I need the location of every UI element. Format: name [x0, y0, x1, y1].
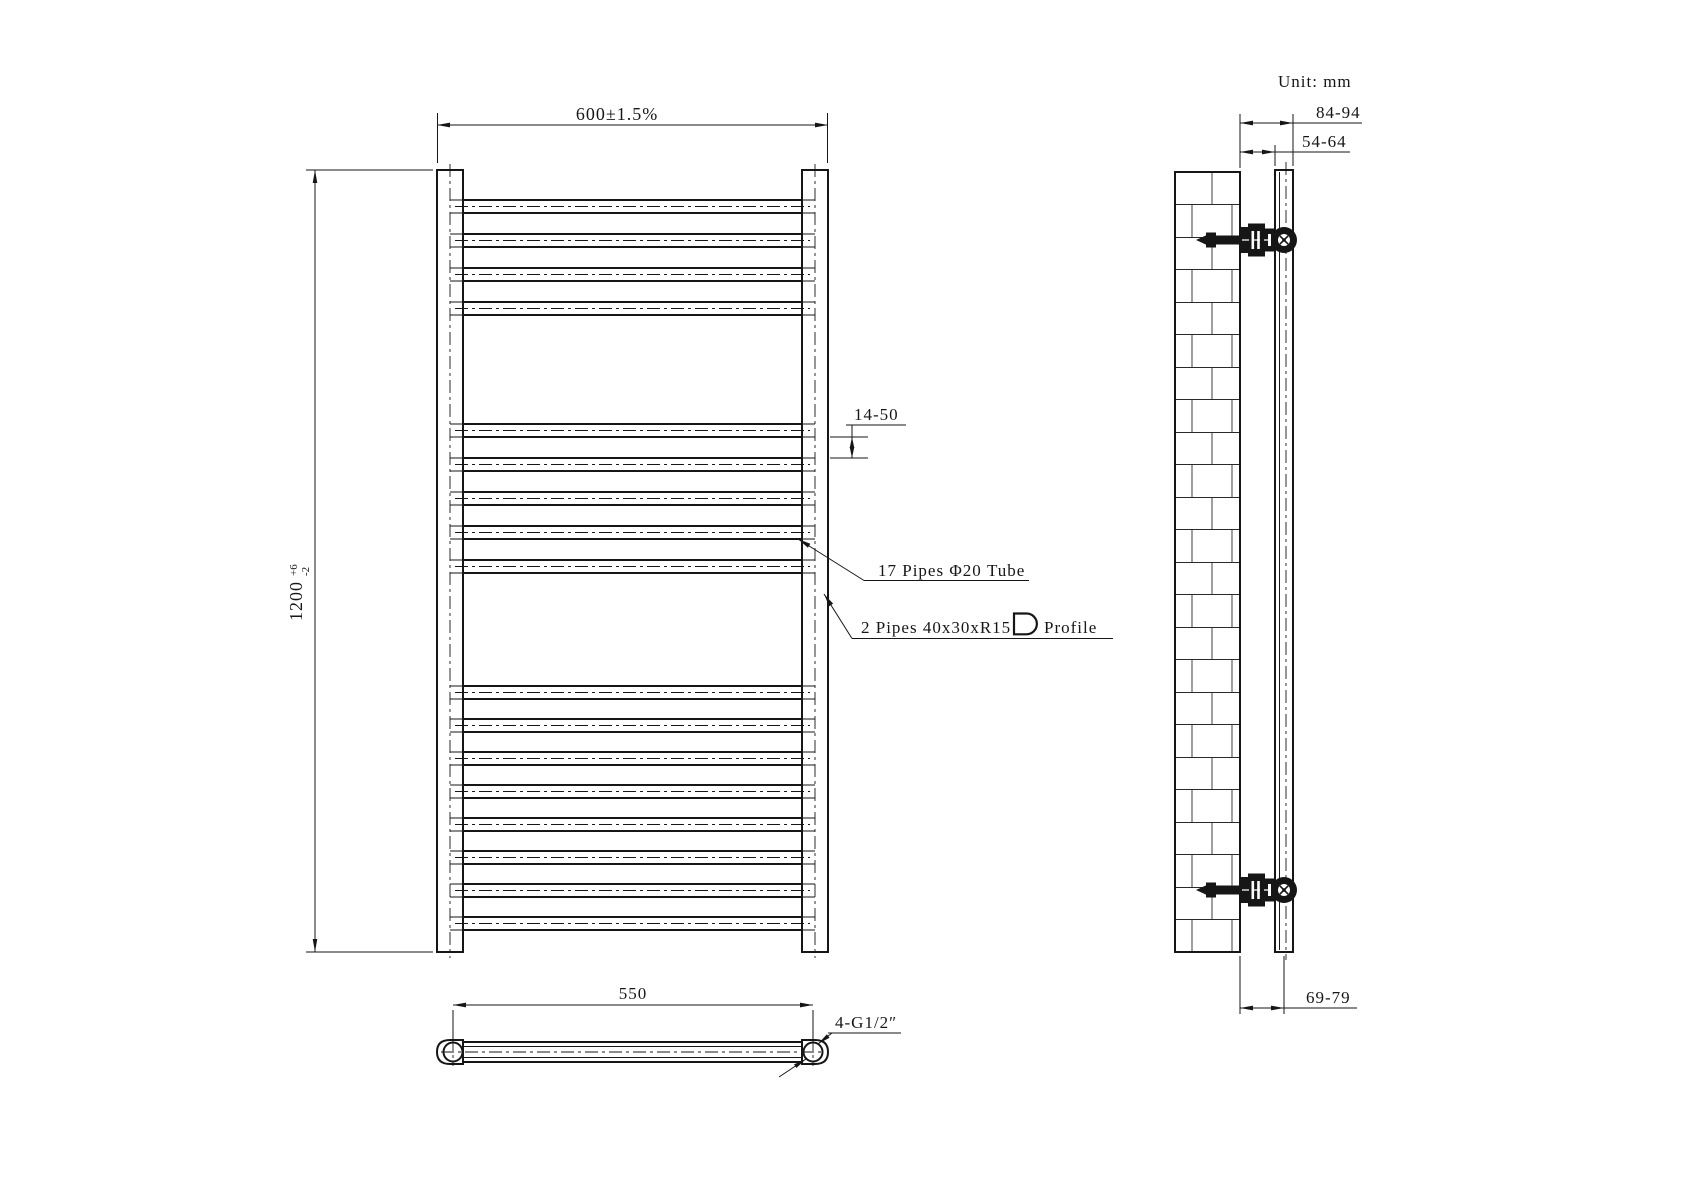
height-tolerance-minus: -2 — [300, 567, 312, 576]
arrowhead — [1271, 1006, 1284, 1011]
arrowhead — [1240, 121, 1253, 126]
profile-note-text: Profile — [1044, 618, 1097, 637]
front-view — [437, 164, 828, 958]
arrowhead — [1240, 150, 1253, 155]
height-dimension-value: 1200 — [286, 581, 306, 621]
span-dimension-text: 550 — [619, 984, 648, 1003]
profile-shape-icon — [1014, 614, 1037, 635]
height-dimension-text: 1200 +6 -2 — [286, 564, 312, 621]
leader-arrowhead — [798, 539, 810, 548]
arrowhead — [313, 170, 318, 183]
center-depth-dimension-text: 69-79 — [1306, 988, 1351, 1007]
arrowhead — [800, 1003, 813, 1008]
inner-depth-dimension-text: 54-64 — [1302, 132, 1347, 151]
drawing-page: 600±1.5% 1200 +6 -2 14-50 17 Pipes Φ20 T… — [0, 0, 1684, 1190]
arrowhead — [1280, 121, 1293, 126]
arrowhead — [437, 123, 450, 128]
width-dimension-text: 600±1.5% — [576, 104, 658, 124]
posts-note-text: 2 Pipes 40x30xR15 — [861, 618, 1011, 637]
unit-label: Unit: mm — [1278, 72, 1352, 91]
pipes-group — [450, 200, 815, 930]
side-view: 84-94 54-64 69-79 Unit: mm — [1175, 72, 1362, 1014]
outer-depth-dimension-text: 84-94 — [1316, 103, 1361, 122]
arrowhead — [850, 437, 855, 448]
wall-section — [1175, 172, 1240, 952]
arrowhead — [815, 123, 828, 128]
bottom-view: 550 4-G1/2″ — [437, 984, 901, 1077]
arrowhead — [453, 1003, 466, 1008]
arrowhead — [313, 939, 318, 952]
arrowhead — [1262, 150, 1275, 155]
arrowhead — [1240, 1006, 1253, 1011]
side-bar — [1275, 170, 1293, 952]
technical-drawing-canvas: 600±1.5% 1200 +6 -2 14-50 17 Pipes Φ20 T… — [0, 0, 1684, 1190]
gap-dimension-text: 14-50 — [854, 405, 899, 424]
fitting-note-text: 4-G1/2″ — [835, 1013, 897, 1032]
arrowhead — [850, 447, 855, 458]
height-tolerance-plus: +6 — [288, 564, 300, 576]
pipes-note-text: 17 Pipes Φ20 Tube — [878, 561, 1025, 580]
